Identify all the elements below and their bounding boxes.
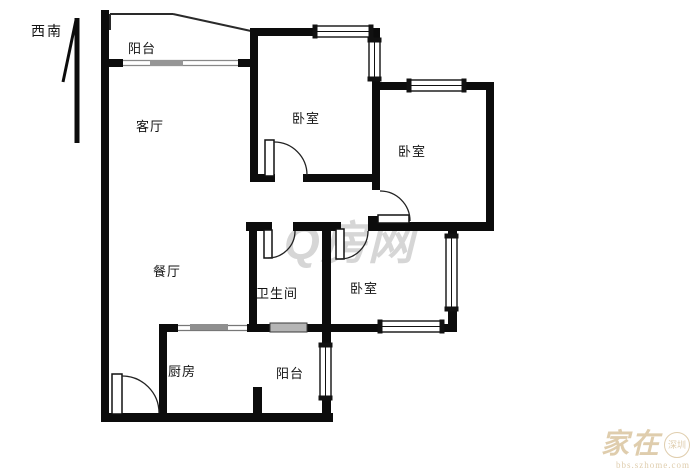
bedroom1-door (265, 140, 307, 176)
balcony-outline (110, 14, 251, 31)
windows (313, 25, 466, 400)
bedroom1-top-window (313, 25, 373, 38)
balcony-side-window (319, 343, 332, 400)
entrance-door (112, 374, 159, 414)
corner-watermark-url: bbs.szhome.com (601, 460, 690, 470)
bedroom1-side-window (368, 38, 381, 81)
corner-watermark: 家在 深圳 bbs.szhome.com (601, 431, 690, 470)
walls (101, 10, 494, 422)
room-label-dining-room: 餐厅 (153, 261, 181, 280)
room-label-bathroom: 卫生间 (256, 283, 298, 302)
bathroom-vent-window (270, 323, 307, 332)
bathroom-door (264, 230, 295, 258)
bedroom2-top-window (407, 79, 466, 92)
compass-arrow-icon (63, 18, 77, 143)
bedroom3-side-window (445, 234, 458, 311)
balcony-railing (123, 60, 238, 66)
room-label-balcony-top: 阳台 (128, 38, 156, 57)
bedroom3-door (336, 229, 368, 259)
room-label-bedroom-3: 卧室 (350, 278, 378, 297)
room-label-kitchen: 厨房 (168, 361, 196, 380)
room-label-bedroom-2: 卧室 (398, 141, 426, 160)
kitchen-counter (178, 324, 247, 331)
compass-label: 西南 (31, 21, 63, 41)
corner-watermark-text: 家在 (601, 431, 661, 459)
room-label-living-room: 客厅 (136, 116, 164, 135)
floorplan-drawing (0, 0, 700, 476)
bedroom2-door (378, 191, 410, 223)
room-label-balcony-bottom: 阳台 (276, 363, 304, 382)
room-label-bedroom-1: 卧室 (292, 108, 320, 127)
corner-watermark-badge: 深圳 (664, 432, 690, 458)
floorplan-canvas: Q房网 (0, 0, 700, 476)
bedroom3-bottom-window (378, 320, 444, 333)
